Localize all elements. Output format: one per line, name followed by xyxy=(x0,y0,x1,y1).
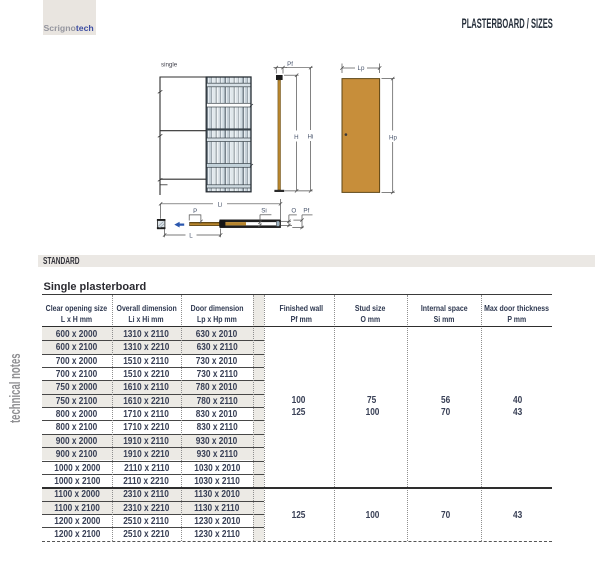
svg-text:H: H xyxy=(294,134,298,141)
svg-text:O: O xyxy=(291,208,296,215)
svg-text:L: L xyxy=(189,232,193,239)
svg-text:Hi: Hi xyxy=(307,134,313,141)
svg-text:Lp: Lp xyxy=(358,65,365,72)
svg-text:Pf: Pf xyxy=(303,208,309,215)
svg-text:P: P xyxy=(193,208,197,215)
svg-text:Hp: Hp xyxy=(389,135,397,142)
svg-text:Si: Si xyxy=(261,208,267,215)
svg-text:Li: Li xyxy=(218,201,223,208)
svg-text:Pf: Pf xyxy=(287,61,293,68)
svg-text:single: single xyxy=(161,62,178,69)
